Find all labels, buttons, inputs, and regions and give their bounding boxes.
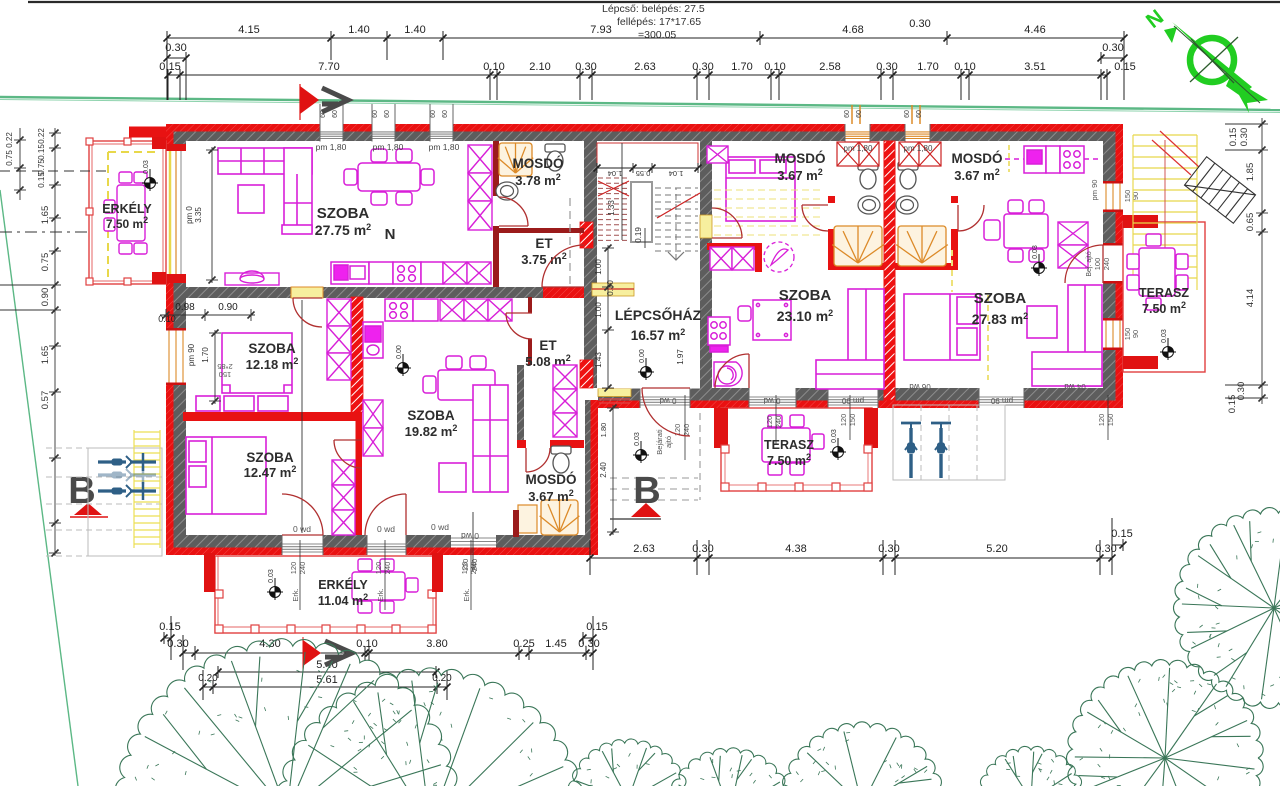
svg-text:4.14: 4.14 — [1245, 289, 1256, 308]
svg-text:60: 60 — [856, 110, 863, 118]
svg-text:1.65: 1.65 — [40, 346, 51, 365]
svg-text:90: 90 — [1131, 192, 1140, 200]
svg-text:1.45: 1.45 — [545, 638, 566, 650]
svg-text:3.35: 3.35 — [194, 207, 203, 223]
svg-text:0.22: 0.22 — [37, 128, 46, 144]
svg-text:4.46: 4.46 — [1024, 24, 1045, 36]
svg-text:23.10 m2: 23.10 m2 — [777, 308, 833, 324]
svg-text:19.82 m2: 19.82 m2 — [405, 423, 458, 439]
svg-text:240: 240 — [383, 562, 392, 575]
svg-text:0.15: 0.15 — [159, 621, 180, 633]
svg-text:0.30: 0.30 — [878, 543, 899, 555]
svg-text:4.68: 4.68 — [842, 24, 863, 36]
svg-text:120: 120 — [374, 562, 383, 575]
svg-text:SZOBA: SZOBA — [974, 290, 1027, 307]
svg-text:0.30: 0.30 — [1102, 42, 1123, 54]
svg-text:0.22: 0.22 — [5, 132, 14, 148]
svg-text:2*85: 2*85 — [217, 362, 232, 371]
svg-text:B: B — [68, 470, 95, 512]
svg-text:0.10: 0.10 — [483, 61, 504, 73]
svg-text:SZOBA: SZOBA — [779, 287, 832, 304]
svg-text:0.03: 0.03 — [1161, 329, 1168, 343]
svg-text:0.00: 0.00 — [639, 349, 646, 363]
svg-text:ERKÉLY: ERKÉLY — [318, 577, 368, 592]
svg-text:60: 60 — [916, 110, 923, 118]
svg-text:12.47 m2: 12.47 m2 — [244, 464, 297, 480]
svg-text:Lépcső: belépés: 27.5: Lépcső: belépés: 27.5 — [602, 3, 705, 15]
svg-text:Bejárati: Bejárati — [655, 429, 664, 455]
svg-text:LÉPCSŐHÁZ: LÉPCSŐHÁZ — [615, 306, 702, 323]
svg-text:0.03: 0.03 — [634, 432, 641, 446]
svg-text:0.75: 0.75 — [5, 150, 14, 166]
svg-text:0.25: 0.25 — [513, 638, 534, 650]
svg-text:100: 100 — [1093, 258, 1102, 271]
svg-text:0.15: 0.15 — [1114, 61, 1135, 73]
svg-text:0.10: 0.10 — [954, 61, 975, 73]
svg-text:1.97: 1.97 — [676, 349, 685, 365]
svg-text:0.15: 0.15 — [1111, 528, 1132, 540]
svg-text:120: 120 — [289, 562, 298, 575]
svg-text:SZOBA: SZOBA — [248, 341, 296, 356]
svg-text:0.10: 0.10 — [764, 61, 785, 73]
svg-text:240: 240 — [469, 562, 478, 575]
svg-text:TERASZ: TERASZ — [1139, 286, 1189, 300]
svg-text:pm 90: pm 90 — [841, 396, 864, 405]
svg-text:60: 60 — [430, 110, 437, 118]
svg-text:pm 1,80: pm 1,80 — [373, 142, 404, 152]
svg-text:1.65: 1.65 — [40, 206, 51, 225]
svg-text:Erk.: Erk. — [462, 588, 471, 601]
svg-text:60: 60 — [372, 110, 379, 118]
svg-text:0.20: 0.20 — [198, 673, 218, 684]
svg-text:ERKÉLY: ERKÉLY — [102, 201, 152, 216]
svg-text:0.90: 0.90 — [40, 288, 51, 307]
svg-text:ET: ET — [535, 236, 553, 251]
svg-text:1.04: 1.04 — [608, 169, 623, 178]
svg-text:0.03: 0.03 — [1032, 245, 1039, 259]
svg-text:pm 1,80: pm 1,80 — [844, 144, 873, 153]
svg-text:=300.05: =300.05 — [638, 29, 676, 41]
svg-text:150: 150 — [1106, 414, 1115, 427]
svg-text:3.67 m2: 3.67 m2 — [777, 167, 823, 183]
svg-text:0.00: 0.00 — [396, 345, 403, 359]
svg-text:pm 0: pm 0 — [185, 206, 194, 224]
svg-text:60: 60 — [320, 110, 327, 118]
svg-text:1.85: 1.85 — [1245, 163, 1256, 182]
svg-text:7.50 m2: 7.50 m2 — [1142, 300, 1186, 316]
svg-text:0,15: 0,15 — [159, 61, 180, 73]
svg-text:60: 60 — [904, 110, 911, 118]
svg-text:1.70: 1.70 — [201, 347, 210, 363]
svg-text:N: N — [385, 226, 396, 243]
svg-text:2.58: 2.58 — [819, 61, 840, 73]
svg-text:2.10: 2.10 — [529, 61, 550, 73]
svg-text:4.38: 4.38 — [785, 543, 806, 555]
svg-text:27.83 m2: 27.83 m2 — [972, 311, 1028, 327]
svg-text:120: 120 — [765, 416, 774, 429]
svg-text:1.80: 1.80 — [599, 423, 608, 438]
svg-text:240: 240 — [1102, 258, 1111, 271]
svg-text:16.57 m2: 16.57 m2 — [631, 327, 686, 343]
svg-text:0.30: 0.30 — [1239, 128, 1250, 147]
svg-text:0.98: 0.98 — [175, 302, 195, 313]
svg-text:1.40: 1.40 — [404, 24, 425, 36]
svg-text:1.40: 1.40 — [348, 24, 369, 36]
svg-text:Erk.: Erk. — [376, 588, 385, 601]
svg-text:0.30: 0.30 — [606, 280, 615, 296]
svg-text:4.15: 4.15 — [238, 24, 259, 36]
svg-text:pm 1,80: pm 1,80 — [316, 142, 347, 152]
svg-text:0.65: 0.65 — [1245, 213, 1256, 232]
svg-text:1.43: 1.43 — [594, 352, 603, 368]
svg-text:60: 60 — [844, 110, 851, 118]
svg-text:0.15: 0.15 — [1227, 395, 1238, 414]
svg-text:240: 240 — [298, 562, 307, 575]
svg-text:0.15: 0.15 — [37, 144, 46, 160]
svg-text:0.55: 0.55 — [636, 169, 651, 178]
svg-text:3.75 m2: 3.75 m2 — [521, 251, 567, 267]
svg-text:3.67 m2: 3.67 m2 — [528, 488, 574, 504]
svg-text:90: 90 — [1131, 330, 1140, 338]
svg-text:0.30: 0.30 — [909, 18, 930, 30]
svg-text:60: 60 — [384, 110, 391, 118]
svg-text:0.10: 0.10 — [158, 314, 176, 324]
svg-text:0.57: 0.57 — [40, 391, 51, 410]
svg-text:3.78 m2: 3.78 m2 — [515, 172, 561, 188]
svg-text:1.70: 1.70 — [731, 61, 752, 73]
svg-text:pm 90: pm 90 — [187, 343, 196, 366]
svg-text:0.90: 0.90 — [218, 302, 238, 313]
svg-text:1.00: 1.00 — [594, 259, 603, 275]
svg-text:0 wd: 0 wd — [660, 396, 677, 405]
svg-text:Erk.: Erk. — [291, 588, 300, 601]
svg-text:3.67 m2: 3.67 m2 — [954, 167, 1000, 183]
svg-text:240: 240 — [774, 416, 783, 429]
svg-text:27.75 m2: 27.75 m2 — [315, 222, 371, 238]
svg-text:240: 240 — [682, 424, 691, 437]
svg-text:0.19: 0.19 — [634, 227, 643, 243]
svg-text:Bej. ajtó: Bej. ajtó — [1086, 251, 1093, 276]
svg-text:pm 1,80: pm 1,80 — [429, 142, 460, 152]
svg-text:0 wd: 0 wd — [764, 396, 781, 405]
svg-text:0.30: 0.30 — [578, 638, 599, 650]
svg-text:MOSDÓ: MOSDÓ — [512, 156, 563, 171]
svg-text:0.30: 0.30 — [165, 42, 186, 54]
svg-text:0.30: 0.30 — [167, 638, 188, 650]
svg-text:0.30: 0.30 — [1095, 543, 1116, 555]
svg-text:1.33: 1.33 — [607, 200, 616, 216]
svg-text:2.63: 2.63 — [633, 543, 654, 555]
svg-text:04 wd: 04 wd — [1064, 382, 1085, 391]
svg-text:0.03: 0.03 — [268, 569, 275, 583]
svg-text:0 wd: 0 wd — [377, 524, 395, 534]
svg-text:0.30: 0.30 — [876, 61, 897, 73]
svg-text:150: 150 — [219, 370, 232, 379]
svg-text:0.03: 0.03 — [831, 429, 838, 443]
svg-text:0.15: 0.15 — [586, 621, 607, 633]
svg-text:5.20: 5.20 — [986, 543, 1007, 555]
svg-text:0.10: 0.10 — [356, 638, 377, 650]
svg-text:SZOBA: SZOBA — [317, 205, 370, 222]
svg-text:7.50 m2: 7.50 m2 — [767, 452, 811, 468]
svg-text:MOSDÓ: MOSDÓ — [774, 151, 825, 166]
svg-text:0.75: 0.75 — [40, 253, 51, 272]
svg-text:SZOBA: SZOBA — [246, 450, 294, 465]
svg-text:12.18 m2: 12.18 m2 — [246, 356, 299, 372]
svg-text:120: 120 — [839, 414, 848, 427]
svg-text:1.70: 1.70 — [917, 61, 938, 73]
svg-text:7.70: 7.70 — [318, 61, 339, 73]
svg-text:0.03: 0.03 — [143, 160, 150, 174]
svg-text:0 wd: 0 wd — [431, 522, 449, 532]
svg-text:pm 1,80: pm 1,80 — [904, 144, 933, 153]
svg-text:ajtó: ajtó — [664, 436, 673, 448]
svg-text:2.40: 2.40 — [599, 462, 608, 478]
svg-text:ET: ET — [539, 338, 557, 353]
svg-text:fellépés: 17*17.65: fellépés: 17*17.65 — [617, 16, 701, 28]
svg-text:0 wd: 0 wd — [461, 531, 479, 541]
svg-text:11.04 m2: 11.04 m2 — [318, 592, 368, 608]
svg-text:0.30: 0.30 — [692, 61, 713, 73]
svg-text:TERASZ: TERASZ — [764, 438, 814, 452]
svg-text:150: 150 — [848, 414, 857, 427]
svg-text:2.63: 2.63 — [634, 61, 655, 73]
svg-text:120: 120 — [1097, 414, 1106, 427]
svg-text:60: 60 — [442, 110, 449, 118]
svg-text:0 wd: 0 wd — [293, 524, 311, 534]
svg-text:3.80: 3.80 — [426, 638, 447, 650]
svg-text:0.15: 0.15 — [37, 172, 46, 188]
svg-text:SZOBA: SZOBA — [407, 408, 455, 423]
svg-text:3.51: 3.51 — [1024, 61, 1045, 73]
svg-text:0.30: 0.30 — [575, 61, 596, 73]
svg-text:pm 90: pm 90 — [1090, 180, 1099, 201]
svg-text:MOSDÓ: MOSDÓ — [525, 472, 576, 487]
svg-text:7.93: 7.93 — [590, 24, 611, 36]
svg-text:0.30: 0.30 — [692, 543, 713, 555]
svg-text:MOSDÓ: MOSDÓ — [951, 151, 1002, 166]
svg-text:0.15: 0.15 — [1228, 128, 1239, 147]
svg-text:60: 60 — [332, 110, 339, 118]
svg-text:1.00: 1.00 — [594, 302, 603, 318]
svg-text:06 wd: 06 wd — [909, 382, 930, 391]
svg-text:pm 90: pm 90 — [990, 396, 1013, 405]
svg-text:1.04: 1.04 — [669, 169, 684, 178]
svg-text:120: 120 — [460, 562, 469, 575]
svg-text:7.50 m2: 7.50 m2 — [106, 215, 148, 231]
svg-text:4.30: 4.30 — [259, 638, 280, 650]
